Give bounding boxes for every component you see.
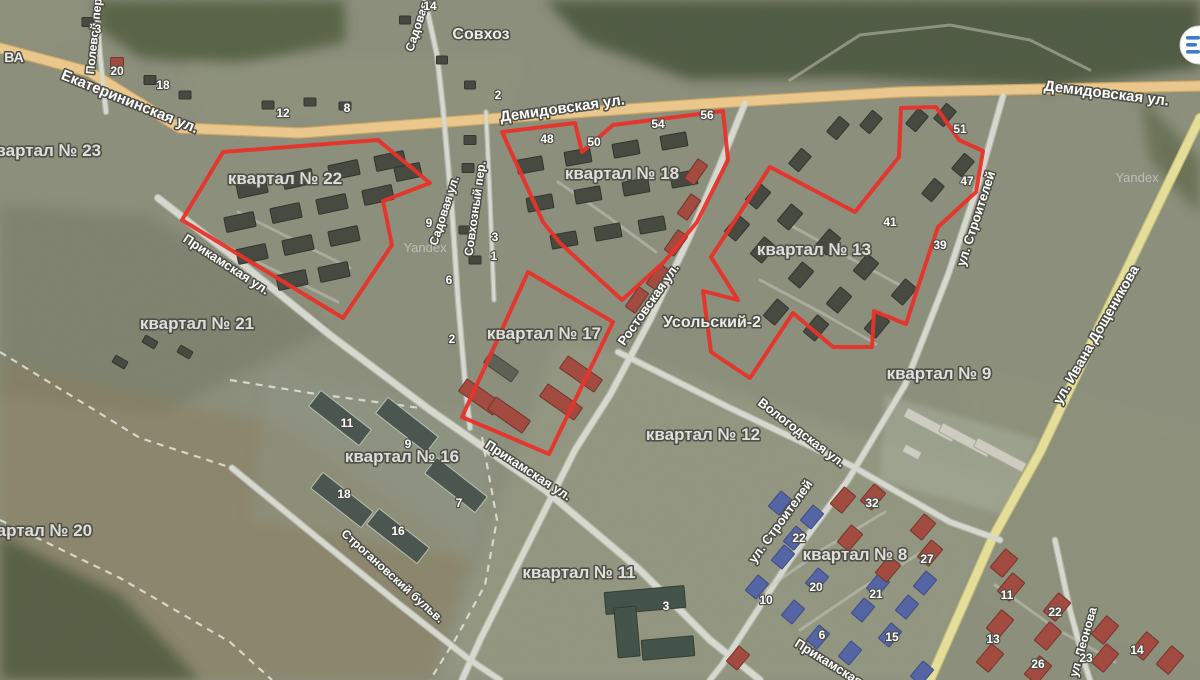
house-number: 3 bbox=[95, 22, 102, 36]
quarter-label: квартал № 13 bbox=[757, 240, 871, 259]
house-number: 9 bbox=[426, 216, 433, 230]
attribution-watermark: Yandex bbox=[1115, 170, 1159, 185]
house-number: 27 bbox=[920, 552, 934, 566]
quarter-label: квартал № 23 bbox=[0, 141, 101, 160]
house-number: 6 bbox=[819, 628, 826, 642]
quarter-label: квартал № 8 bbox=[803, 545, 908, 564]
quarter-label: квартал № 21 bbox=[140, 314, 254, 333]
house-number: 14 bbox=[1130, 643, 1144, 657]
house-number: 11 bbox=[1001, 588, 1014, 602]
house-number: 21 bbox=[869, 587, 883, 601]
house-number: 26 bbox=[1031, 657, 1045, 671]
quarter-label: квартал № 16 bbox=[345, 447, 459, 466]
house-number: 18 bbox=[337, 487, 351, 501]
quarter-label: квартал № 18 bbox=[565, 164, 679, 183]
place-label: Усольский-2 bbox=[663, 314, 761, 331]
quarter-label: квартал № 22 bbox=[228, 169, 342, 188]
quarter-label: квартал № 12 bbox=[646, 425, 760, 444]
house-number: 50 bbox=[587, 135, 601, 149]
house-number: 15 bbox=[885, 630, 899, 644]
house-number: 10 bbox=[759, 593, 773, 607]
house-number: 16 bbox=[391, 524, 405, 538]
house-number: 39 bbox=[933, 238, 947, 252]
house-number: 23 bbox=[1079, 651, 1093, 665]
house-number: 3 bbox=[663, 599, 670, 613]
house-number: 32 bbox=[865, 496, 879, 510]
house-number: 14 bbox=[423, 0, 437, 13]
house-number: 7 bbox=[456, 496, 463, 510]
house-number: 41 bbox=[883, 215, 897, 229]
attribution-watermark: Yandex bbox=[403, 240, 447, 255]
house-number: 11 bbox=[341, 416, 354, 430]
house-number: 18 bbox=[156, 78, 170, 92]
house-number: 48 bbox=[540, 132, 554, 146]
map-canvas[interactable]: Екатерининская ул.Демидовская ул.Демидов… bbox=[0, 0, 1200, 680]
house-number: 20 bbox=[809, 580, 823, 594]
house-number: 1 bbox=[491, 249, 498, 263]
place-label: Совхоз bbox=[452, 26, 509, 43]
house-number: 22 bbox=[792, 531, 806, 545]
house-number: 22 bbox=[1048, 605, 1062, 619]
quarter-label: квартал № 11 bbox=[522, 563, 635, 582]
house-number: 54 bbox=[651, 117, 665, 131]
house-number: 20 bbox=[110, 64, 124, 78]
house-number: 3 bbox=[492, 230, 499, 244]
quarter-label: квартал № 20 bbox=[0, 521, 92, 540]
place-label: ВА bbox=[4, 49, 24, 65]
house-number: 9 bbox=[405, 437, 412, 451]
house-number: 56 bbox=[700, 108, 714, 122]
house-number: 47 bbox=[960, 174, 974, 188]
house-number: 2 bbox=[449, 332, 456, 346]
house-number: 13 bbox=[986, 632, 1000, 646]
house-number: 51 bbox=[953, 122, 967, 136]
house-number: 12 bbox=[276, 106, 290, 120]
house-number: 8 bbox=[344, 101, 351, 115]
house-number: 2 bbox=[495, 88, 502, 102]
quarter-label: квартал № 9 bbox=[887, 364, 992, 383]
house-number: 6 bbox=[446, 273, 453, 287]
quarter-label: квартал № 17 bbox=[487, 324, 601, 343]
